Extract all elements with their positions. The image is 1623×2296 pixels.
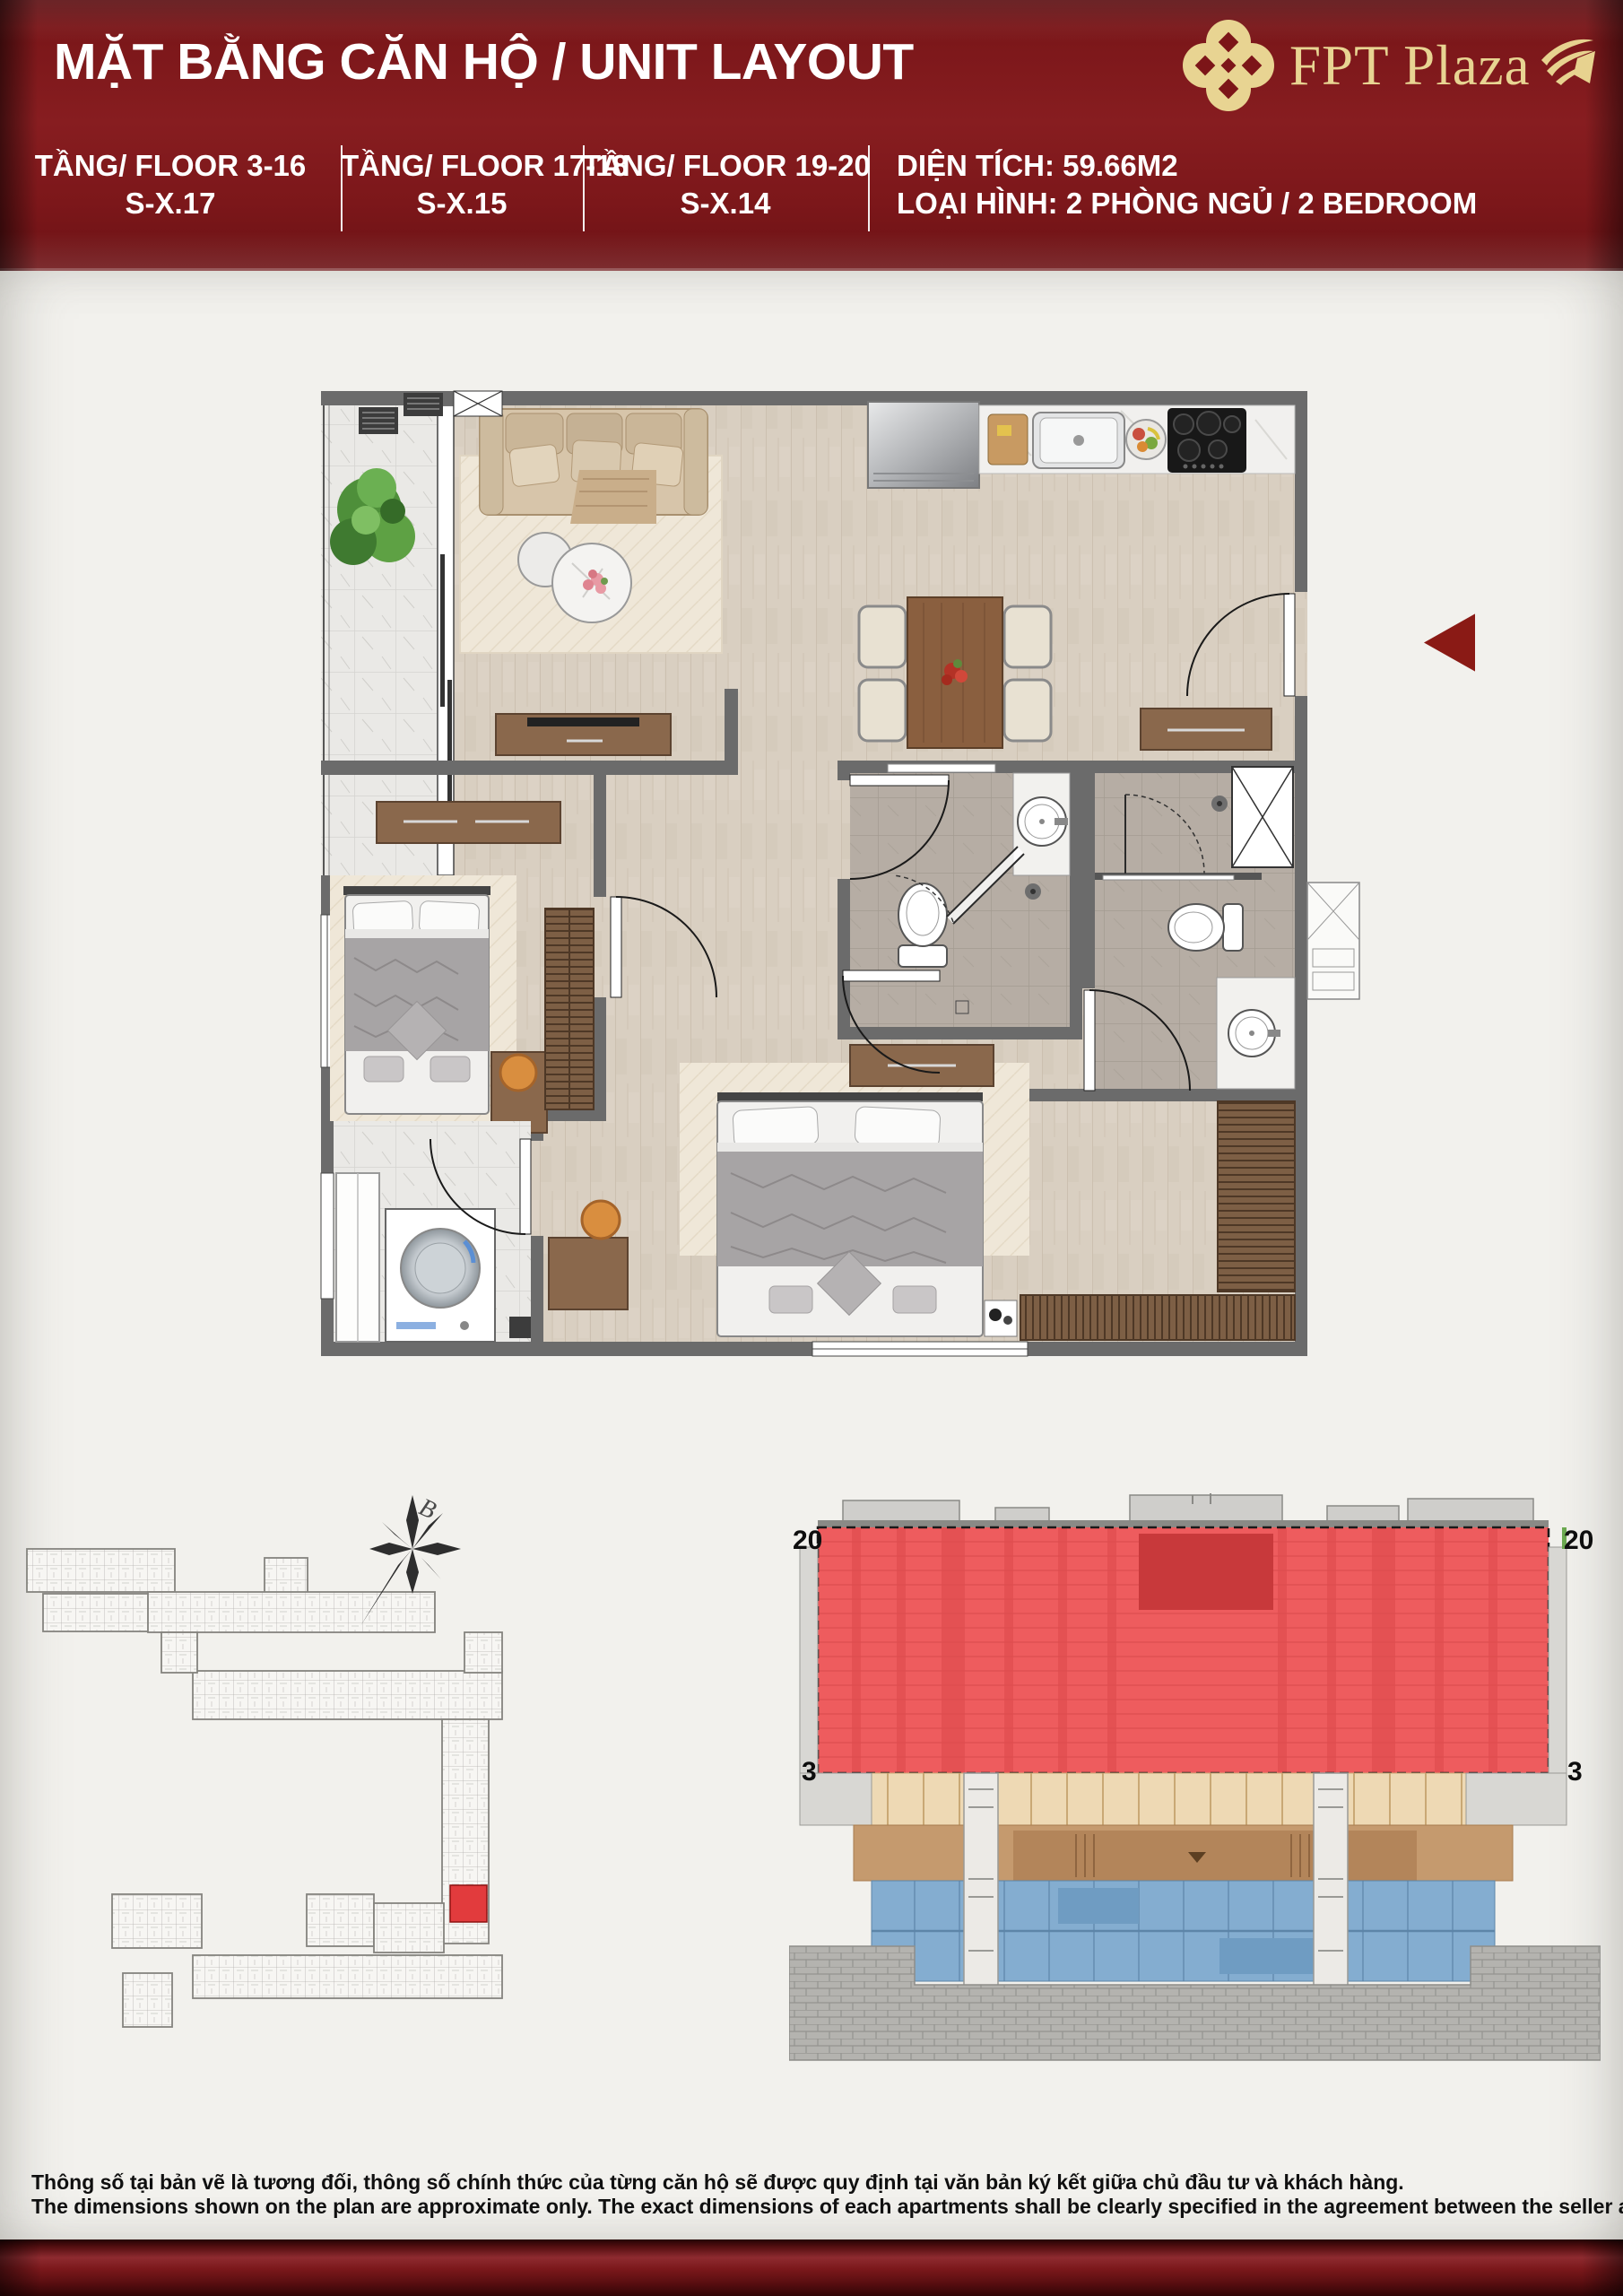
shelf xyxy=(888,764,995,772)
bed-2 xyxy=(717,1092,983,1336)
bathroom-1 xyxy=(850,764,1070,1027)
floor-label-20-right: 20 xyxy=(1564,1526,1593,1556)
fridge-icon xyxy=(868,402,979,488)
fruit-bowl-icon xyxy=(1126,420,1166,459)
unit-floor-plan-drawing xyxy=(314,384,1367,1361)
entry-door-leaf xyxy=(1284,594,1295,696)
floor-label-3-right: 3 xyxy=(1567,1757,1583,1787)
tv xyxy=(527,717,639,726)
highlighted-floors xyxy=(818,1527,1549,1773)
accessory-tray xyxy=(985,1300,1017,1336)
building-wings xyxy=(27,1549,502,2027)
unit-spec-cell: DIỆN TÍCH: 59.66M2 LOẠI HÌNH: 2 PHÒNG NG… xyxy=(897,147,1614,222)
door-leaf xyxy=(611,897,621,997)
disclaimer-en: The dimensions shown on the plan are app… xyxy=(31,2195,1623,2219)
roof-structures xyxy=(843,1495,1533,1522)
laundry-balcony xyxy=(321,1121,531,1342)
site-plan: B xyxy=(18,1493,556,2049)
floor-label-20-left: 20 xyxy=(793,1526,822,1556)
area-label: DIỆN TÍCH: 59.66M2 xyxy=(897,147,1614,185)
door-leaf xyxy=(1084,990,1095,1091)
bed-1 xyxy=(343,886,490,1114)
vent-grille-icon xyxy=(359,407,398,434)
chair-icon xyxy=(582,1201,620,1239)
toilet-icon xyxy=(1168,904,1243,951)
floor-cell-1: TẦNG/ FLOOR 3-16 S-X.17 xyxy=(0,147,341,222)
wardrobe xyxy=(1218,1101,1295,1291)
floor-range-label: TẦNG/ FLOOR 3-16 xyxy=(0,147,341,185)
unit-code: S-X.14 xyxy=(583,185,868,222)
brand-logo: FPT Plaza xyxy=(1182,16,1597,115)
core-block xyxy=(1139,1534,1273,1610)
cutting-board xyxy=(988,414,1028,465)
unit-code: S-X.15 xyxy=(341,185,583,222)
brand-swoosh-icon xyxy=(1540,35,1597,89)
wardrobe-bench xyxy=(1020,1295,1295,1340)
left-edge xyxy=(800,1547,818,1773)
desk xyxy=(549,1238,628,1309)
site-plan-drawing xyxy=(18,1493,556,2049)
window xyxy=(321,1173,334,1299)
unit-code: S-X.17 xyxy=(0,185,341,222)
ac-ledge xyxy=(1307,883,1359,999)
unit-direction-marker-icon xyxy=(1424,613,1475,673)
chair-icon xyxy=(500,1055,536,1091)
door-leaf xyxy=(520,1139,531,1234)
floor-range-label: TẦNG/ FLOOR 17-18 xyxy=(341,147,583,185)
brochure-page: MẶT BẰNG CĂN HỘ / UNIT LAYOUT FPT Plaza xyxy=(0,0,1623,2296)
floor-cell-3: TẦNG/ FLOOR 19-20 S-X.14 xyxy=(583,147,868,222)
brand-name: FPT Plaza xyxy=(1289,33,1531,99)
cross-section-drawing xyxy=(789,1493,1601,2076)
floor-range-label: TẦNG/ FLOOR 19-20 xyxy=(583,147,868,185)
podium-floors xyxy=(800,1773,1567,1825)
floor-label-3-left: 3 xyxy=(802,1757,817,1787)
toilet-icon xyxy=(898,883,947,967)
bathroom-2 xyxy=(1084,767,1295,1091)
washing-machine-icon xyxy=(386,1209,495,1342)
disclaimer-vi: Thông số tại bản vẽ là tương đối, thông … xyxy=(31,2170,1404,2195)
towel-bar xyxy=(1103,875,1234,880)
page-title: MẶT BẰNG CĂN HỘ / UNIT LAYOUT xyxy=(54,32,914,91)
bottom-bar xyxy=(0,2239,1623,2296)
floor-cell-2: TẦNG/ FLOOR 17-18 S-X.15 xyxy=(341,147,583,222)
header-band: MẶT BẰNG CĂN HỘ / UNIT LAYOUT FPT Plaza xyxy=(0,0,1623,271)
sofa xyxy=(480,409,707,524)
right-edge xyxy=(1549,1547,1567,1773)
floor-drain-icon xyxy=(509,1317,531,1338)
door-leaf xyxy=(850,775,949,786)
unit-floor-plan xyxy=(314,384,1367,1361)
cooktop-icon xyxy=(1167,408,1246,473)
building-cross-section: 20 20 3 3 xyxy=(789,1493,1601,2076)
highlighted-unit xyxy=(450,1885,487,1922)
sink-icon xyxy=(1033,413,1124,468)
flower-logo-icon xyxy=(1182,19,1275,112)
ground-levels xyxy=(854,1825,1513,1881)
type-label: LOẠI HÌNH: 2 PHÒNG NGỦ / 2 BEDROOM xyxy=(897,185,1614,222)
door-leaf xyxy=(843,970,940,981)
